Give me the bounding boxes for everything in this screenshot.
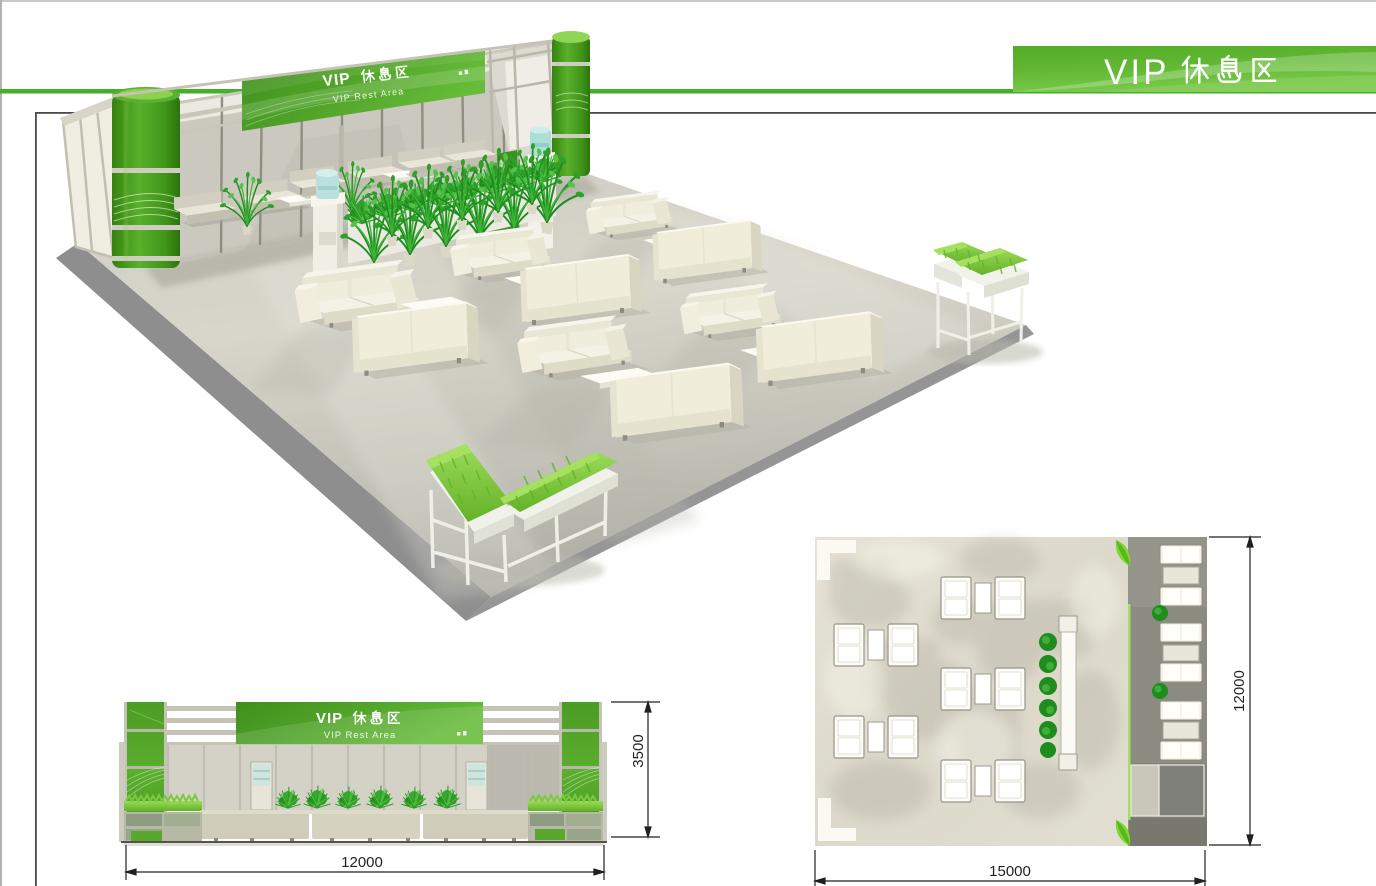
svg-text:3500: 3500 bbox=[630, 734, 647, 767]
svg-text:12000: 12000 bbox=[341, 854, 383, 871]
svg-text:VIP: VIP bbox=[1104, 53, 1169, 92]
svg-text:12000: 12000 bbox=[1231, 670, 1248, 712]
svg-text:VIP Rest Area: VIP Rest Area bbox=[324, 730, 397, 741]
svg-text:VIP: VIP bbox=[316, 710, 343, 727]
svg-text:15000: 15000 bbox=[989, 863, 1031, 880]
svg-text:VIP: VIP bbox=[322, 70, 352, 90]
